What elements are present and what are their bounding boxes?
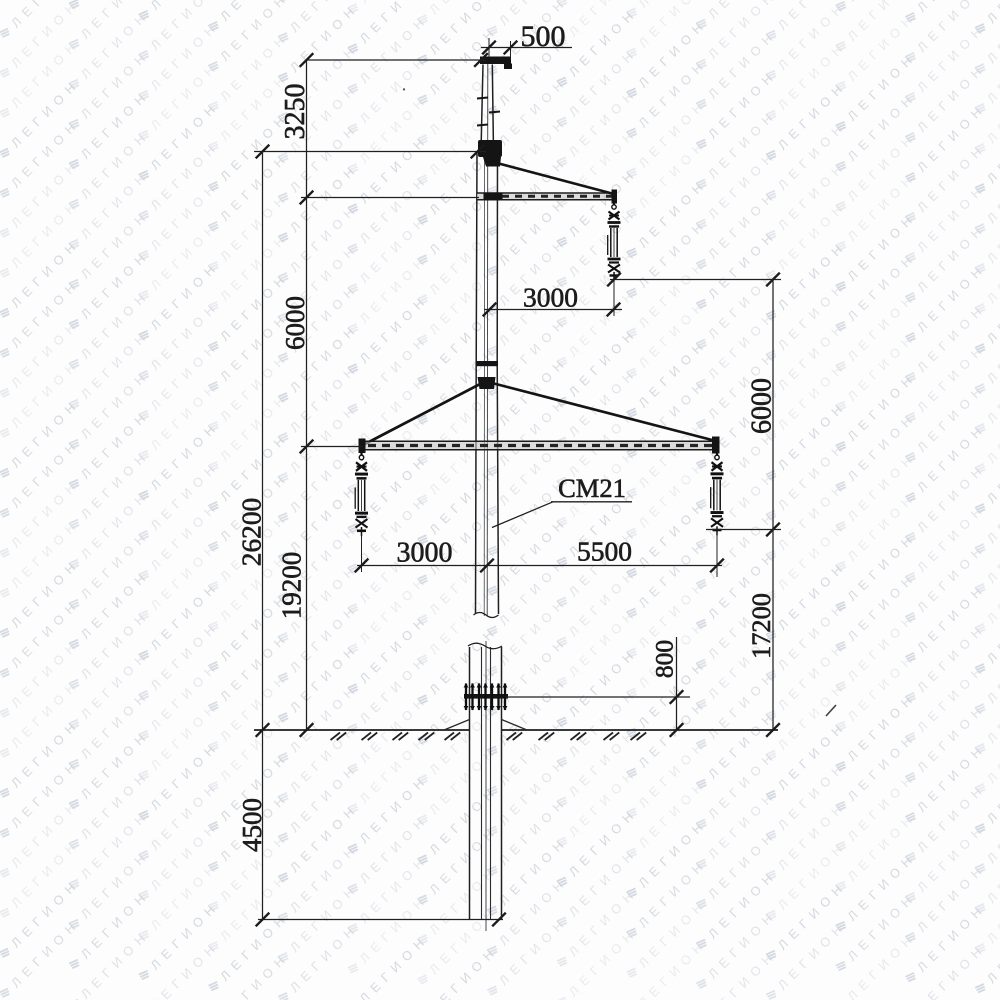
svg-text:СМ21: СМ21 (558, 473, 626, 503)
svg-text:26200: 26200 (237, 498, 267, 566)
svg-text:5500: 5500 (577, 536, 632, 567)
svg-text:19200: 19200 (277, 552, 307, 620)
svg-text:6000: 6000 (747, 378, 778, 434)
svg-text:3250: 3250 (280, 84, 311, 140)
svg-text:3000: 3000 (523, 282, 578, 313)
svg-text:4500: 4500 (237, 798, 267, 852)
svg-text:6000: 6000 (280, 296, 310, 350)
svg-text:3000: 3000 (397, 538, 453, 569)
svg-text:500: 500 (521, 20, 566, 53)
svg-text:17200: 17200 (747, 593, 776, 659)
svg-text:800: 800 (650, 640, 679, 678)
